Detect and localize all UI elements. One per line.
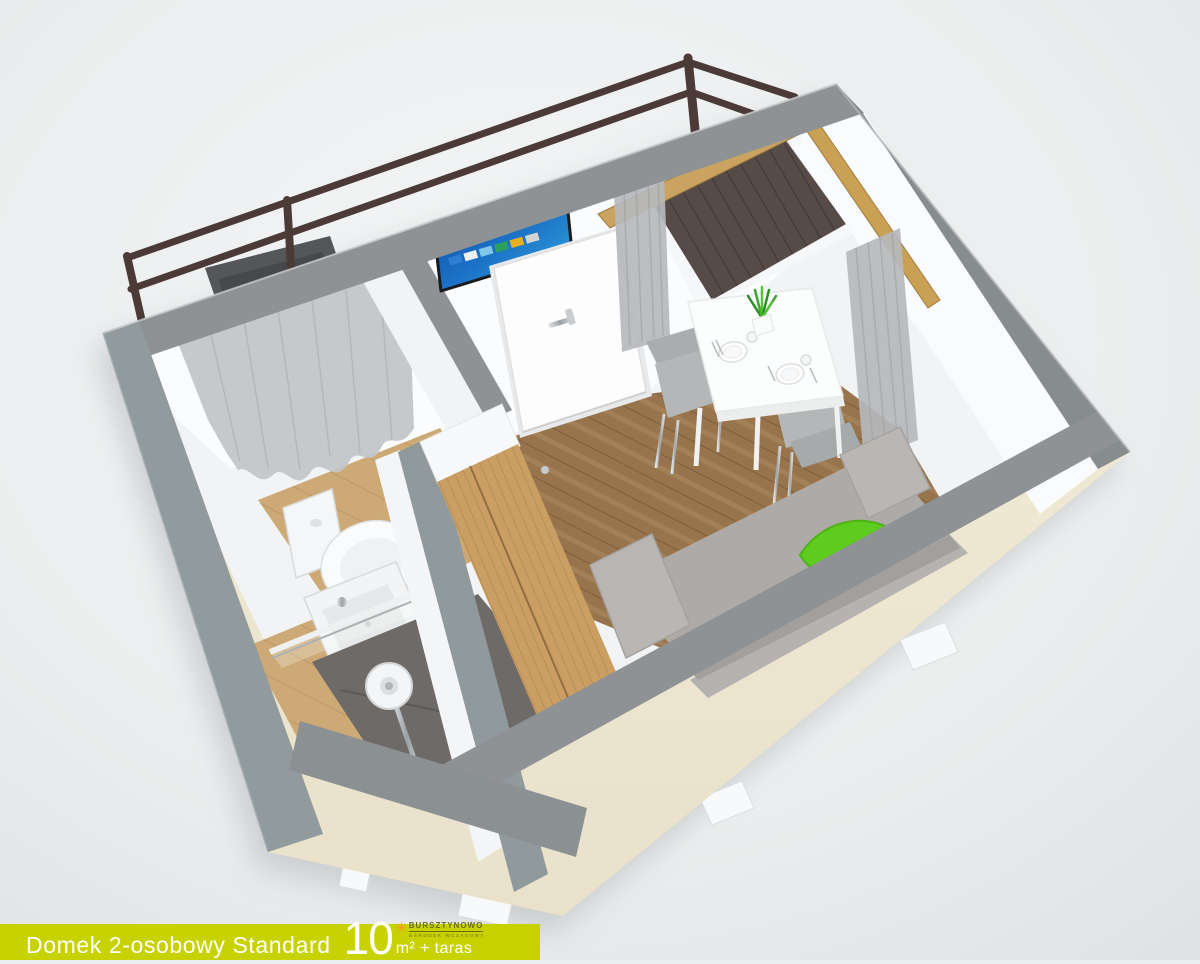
logo-tagline: OŚRODEK WCZASOWY <box>409 934 485 939</box>
window-curtain-left <box>614 172 670 352</box>
render-canvas: Domek 2-osobowy Standard 10 BURSZTYNOWO … <box>0 0 1200 960</box>
caption-banner: Domek 2-osobowy Standard 10 BURSZTYNOWO … <box>0 924 540 960</box>
logo-name: BURSZTYNOWO <box>409 922 484 932</box>
sun-icon <box>396 922 407 933</box>
resort-logo: BURSZTYNOWO <box>396 922 484 933</box>
cabin-3d-render <box>0 0 1200 960</box>
area-value: 10 <box>344 921 393 957</box>
wardrobe-knob <box>541 466 549 474</box>
banner-title: Domek 2-osobowy Standard <box>26 933 331 957</box>
area-unit: m² + taras <box>396 941 472 957</box>
